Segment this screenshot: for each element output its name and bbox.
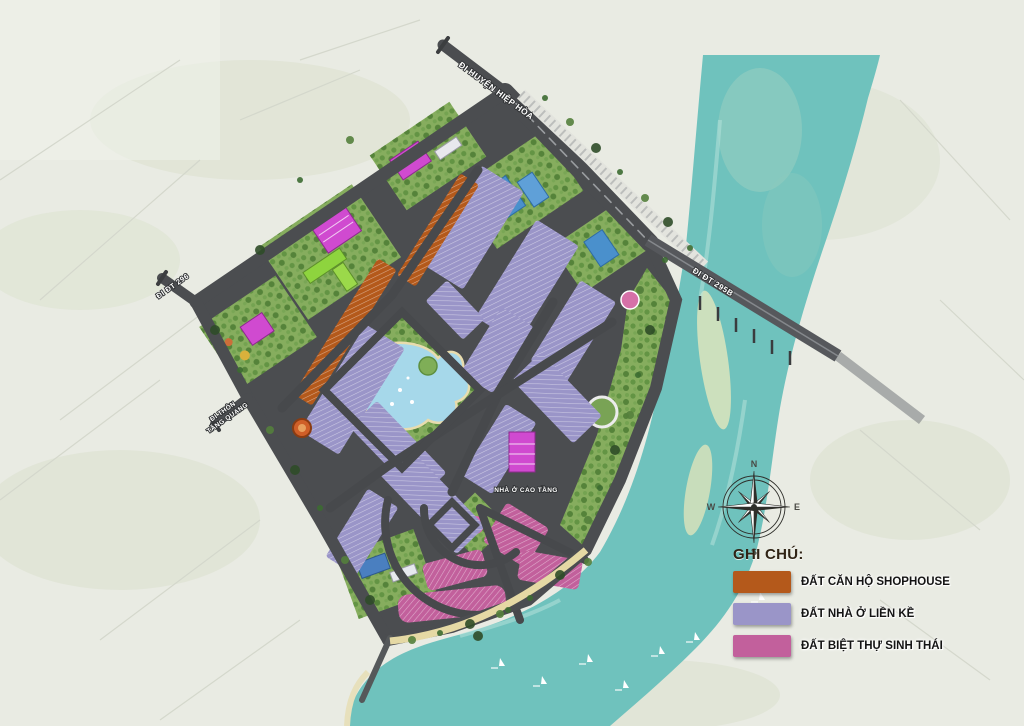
legend-item-rowhouse: ĐẤT NHÀ Ở LIỀN KỀ xyxy=(733,603,983,625)
legend-swatch-shophouse xyxy=(733,571,791,593)
high-rise-building xyxy=(509,432,535,472)
master-plan-screenshot: ĐI HUYỆN HIỆP HÒA ĐI ĐT 295B ĐI ĐT 296 Đ… xyxy=(0,0,1024,726)
utility-building-core xyxy=(298,424,306,432)
legend-item-shophouse: ĐẤT CĂN HỘ SHOPHOUSE xyxy=(733,571,983,593)
legend-label-rowhouse: ĐẤT NHÀ Ở LIỀN KỀ xyxy=(801,608,914,620)
compass-e: E xyxy=(794,502,800,512)
legend-item-villa: ĐẤT BIỆT THỰ SINH THÁI xyxy=(733,635,983,657)
legend-title: GHI CHÚ: xyxy=(733,546,983,563)
compass-n: N xyxy=(751,459,758,469)
compass-w: W xyxy=(707,502,716,512)
flower-garden xyxy=(621,291,639,309)
legend-label-shophouse: ĐẤT CĂN HỘ SHOPHOUSE xyxy=(801,576,950,588)
legend: GHI CHÚ: ĐẤT CĂN HỘ SHOPHOUSE ĐẤT NHÀ Ở … xyxy=(733,546,983,667)
legend-label-villa: ĐẤT BIỆT THỰ SINH THÁI xyxy=(801,640,943,652)
legend-swatch-rowhouse xyxy=(733,603,791,625)
lake-island xyxy=(419,357,437,375)
legend-swatch-villa xyxy=(733,635,791,657)
